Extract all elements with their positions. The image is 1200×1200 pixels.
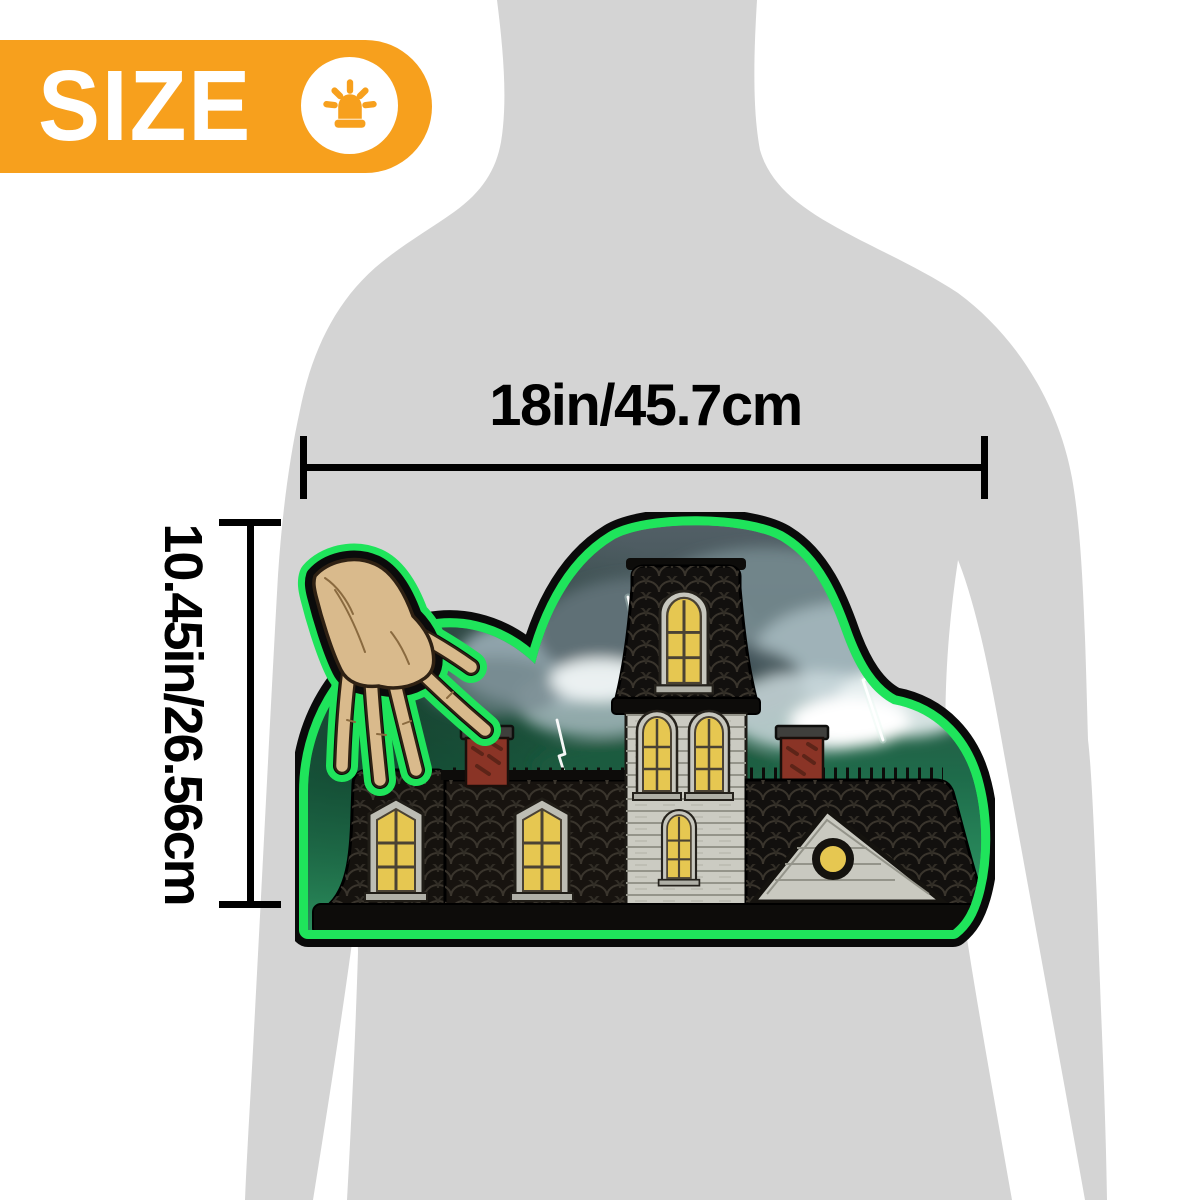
- central-tower: [612, 558, 760, 906]
- chimney-right: [776, 726, 828, 786]
- height-dimension-cap-top: [219, 519, 281, 526]
- siren-icon-circle: [301, 57, 398, 154]
- dormer-window-center: [511, 799, 573, 901]
- size-badge: SIZE: [0, 40, 432, 173]
- dormer-window-left: [365, 799, 427, 901]
- width-dimension-line: [303, 464, 988, 471]
- product-image-haunted-house-plaque: [295, 512, 995, 948]
- siren-alert-icon: [321, 77, 379, 135]
- tower-top-window: [655, 591, 713, 693]
- gable-round-window: [816, 842, 850, 876]
- tower-cornice: [612, 698, 760, 714]
- height-dimension-cap-bottom: [219, 901, 281, 908]
- height-dimension-label: 10.45in/26.56cm: [155, 520, 211, 908]
- width-dimension-cap-right: [981, 436, 988, 499]
- tower-window-lower: [659, 810, 700, 886]
- tower-window-left: [633, 711, 681, 800]
- size-chart-page: SIZE 18in/45.7cm 10.45in/26.56cm: [0, 0, 1200, 1200]
- width-dimension-cap-left: [300, 436, 307, 499]
- width-dimension-label: 18in/45.7cm: [303, 372, 988, 439]
- right-wing: [746, 780, 983, 908]
- tower-window-right: [685, 711, 733, 800]
- height-dimension-line: [247, 522, 254, 908]
- size-badge-label: SIZE: [38, 40, 252, 173]
